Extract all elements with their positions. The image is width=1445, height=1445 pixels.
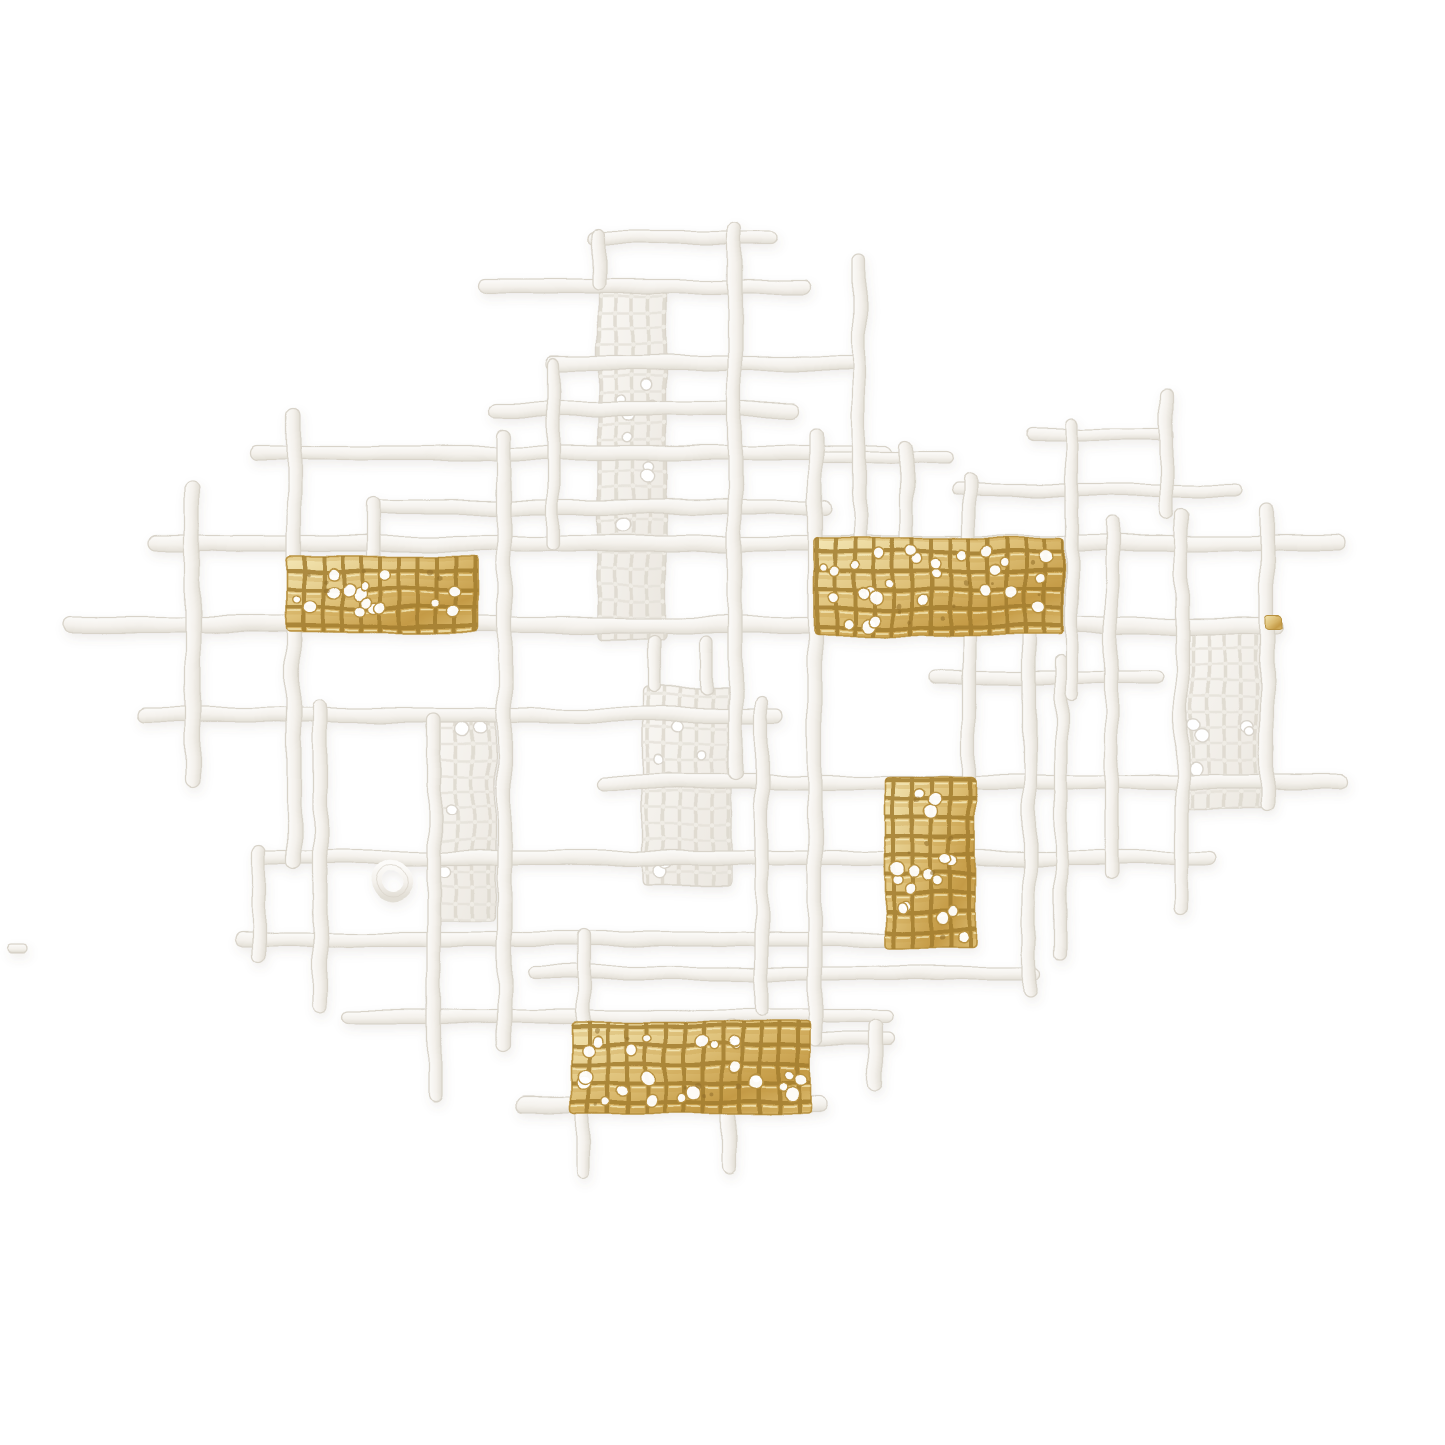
- gold-mesh-hole: [917, 594, 928, 605]
- gold-speck: [595, 1103, 598, 1106]
- plaster-bar-vertical: [700, 636, 712, 694]
- plaster-bar-vertical: [287, 408, 301, 870]
- gold-speck: [992, 581, 995, 584]
- plaster-bar-vertical: [1023, 630, 1036, 997]
- plaster-bar-horizontal: [63, 617, 1283, 633]
- mesh-hole: [698, 751, 707, 760]
- gold-mesh-hole: [937, 912, 949, 924]
- plaster-bar-vertical: [1066, 418, 1078, 700]
- gold-mesh-hole: [978, 583, 990, 595]
- gold-mesh-hole: [820, 563, 828, 571]
- plaster-bar-vertical: [547, 358, 559, 550]
- gold-mesh-hole: [303, 601, 317, 615]
- gold-mesh-hole: [982, 544, 993, 555]
- gold-mesh-hole: [957, 548, 968, 559]
- plaster-bar-horizontal: [950, 484, 1242, 496]
- gold-mesh-hole: [990, 563, 1001, 574]
- gold-mesh-hole: [293, 596, 301, 604]
- plaster-bar-vertical: [313, 700, 327, 1013]
- gold-mesh-hole: [379, 568, 391, 580]
- plaster-bar-horizontal: [138, 708, 784, 722]
- plaster-bar-horizontal: [1026, 428, 1174, 440]
- gold-mesh-hole: [957, 933, 968, 944]
- gold-speck: [896, 601, 901, 606]
- gold-speck: [938, 934, 944, 940]
- plaster-mesh-panel: [433, 713, 495, 921]
- gold-speck: [952, 605, 955, 608]
- gold-speck: [427, 568, 433, 574]
- gold-mesh-hole: [778, 1082, 786, 1090]
- gold-mesh-hole: [750, 1075, 764, 1089]
- gold-speck: [962, 579, 968, 585]
- gold-speck: [702, 1094, 706, 1098]
- plaster-bar-horizontal: [478, 279, 812, 293]
- gold-mesh-hole: [1000, 557, 1008, 565]
- gold-mesh-hole: [869, 614, 881, 626]
- plaster-bar-horizontal: [250, 446, 893, 460]
- gold-mesh-hole: [728, 1037, 739, 1048]
- mesh-hole: [1188, 762, 1202, 776]
- gold-mesh-hole: [326, 567, 337, 578]
- gold-speck: [949, 835, 954, 840]
- gold-mesh-hole: [931, 568, 941, 578]
- gold-mesh-hole: [896, 902, 907, 913]
- plaster-bar-horizontal: [813, 452, 953, 464]
- gold-mesh-hole: [794, 1074, 807, 1087]
- gold-mesh-hole: [640, 1071, 654, 1085]
- gold-mesh-hole: [869, 589, 882, 602]
- gold-mesh-panel: [287, 556, 478, 633]
- gold-mesh-hole: [602, 1098, 610, 1106]
- plaster-bar-vertical: [253, 845, 266, 963]
- gold-mesh-hole: [858, 586, 870, 598]
- mesh-panel-texture: [433, 713, 495, 921]
- gold-mesh-hole: [924, 805, 938, 819]
- wall-sculpture-photo: [0, 0, 1445, 1445]
- gold-fleck: [1266, 615, 1282, 628]
- gold-mesh-hole: [1036, 573, 1046, 583]
- plaster-bar-vertical: [1055, 655, 1067, 960]
- gold-mesh-hole: [677, 1094, 686, 1103]
- sculpture: [8, 221, 1347, 1178]
- plaster-bar-vertical: [648, 636, 660, 694]
- gold-mesh-hole: [694, 1035, 707, 1048]
- gold-mesh-hole: [643, 1035, 651, 1043]
- gold-mesh-hole: [1006, 586, 1020, 600]
- gold-mesh-hole: [1038, 549, 1052, 563]
- gold-mesh-hole: [1033, 602, 1046, 615]
- gold-speck: [360, 568, 365, 573]
- gold-mesh-panel: [885, 776, 975, 948]
- gold-speck: [709, 1091, 713, 1095]
- plaster-bar-horizontal: [588, 231, 778, 244]
- gold-mesh-hole: [582, 1043, 595, 1056]
- gold-mesh-hole: [874, 547, 885, 558]
- product-photo-stage: [0, 0, 1445, 1445]
- gold-speck: [909, 619, 912, 622]
- gold-mesh-hole: [341, 582, 354, 595]
- gold-mesh-panel: [814, 538, 1064, 635]
- plaster-bar-vertical: [428, 713, 441, 1103]
- plaster-bar-vertical: [1105, 517, 1118, 880]
- gold-mesh-hole: [448, 606, 460, 618]
- gold-speck: [914, 796, 920, 802]
- plaster-bar-vertical: [869, 1020, 883, 1090]
- mesh-hole: [641, 380, 652, 391]
- mesh-hole: [1195, 729, 1209, 743]
- gold-mesh-hole: [930, 558, 941, 569]
- gold-mesh-hole: [932, 877, 942, 887]
- plaster-bar-vertical: [728, 221, 742, 781]
- horizontal-bar-layer: [8, 231, 1347, 1112]
- plaster-bar-vertical: [1175, 508, 1188, 913]
- gold-speck: [1040, 594, 1043, 597]
- gold-mesh-hole: [431, 600, 440, 609]
- gold-speck: [737, 1083, 743, 1089]
- gold-mesh-hole: [928, 792, 941, 805]
- gold-mesh-hole: [449, 585, 461, 597]
- gold-speck: [323, 586, 329, 592]
- gold-speck: [437, 574, 443, 580]
- mesh-hole: [445, 805, 456, 816]
- plaster-bar-vertical: [808, 428, 822, 1045]
- gold-mesh-hole: [940, 853, 952, 865]
- mesh-hole: [1245, 728, 1254, 737]
- mesh-hole: [1188, 719, 1200, 731]
- gold-mesh-hole: [785, 1071, 794, 1080]
- mesh-hole: [654, 755, 664, 765]
- mesh-hole: [672, 722, 683, 733]
- gold-mesh-hole: [890, 862, 904, 876]
- gold-mesh-hole: [592, 1036, 603, 1047]
- gold-speck: [1030, 560, 1034, 564]
- gold-mesh-hole: [908, 866, 920, 878]
- plaster-bar-horizontal: [527, 967, 1040, 980]
- plaster-bar-vertical: [185, 480, 200, 788]
- gold-mesh-hole: [729, 1062, 741, 1074]
- plaster-bar-horizontal: [8, 945, 28, 953]
- gold-mesh-hole: [885, 578, 894, 587]
- gold-mesh-hole: [828, 593, 839, 604]
- gold-mesh-hole: [843, 618, 854, 629]
- gold-mesh-hole: [851, 560, 860, 569]
- gold-mesh-hole: [644, 1094, 656, 1106]
- gold-speck: [940, 615, 944, 619]
- plaster-bar-horizontal: [367, 500, 831, 514]
- gold-mesh-hole: [948, 907, 958, 917]
- gold-mesh-hole: [375, 602, 387, 614]
- gold-mesh-hole: [617, 1085, 628, 1096]
- mesh-hole: [474, 721, 486, 733]
- gold-speck: [931, 873, 936, 878]
- gold-mesh-hole: [578, 1069, 593, 1084]
- plaster-bar-vertical: [497, 428, 511, 1053]
- gold-speck: [925, 840, 930, 845]
- plaster-bar-vertical: [1160, 390, 1173, 520]
- mesh-hole: [456, 722, 470, 736]
- gold-speck: [696, 1082, 702, 1088]
- gold-speck: [322, 577, 326, 581]
- gold-mesh-hole: [359, 581, 368, 590]
- plaster-bar-horizontal: [545, 356, 862, 370]
- gold-mesh-hole: [354, 605, 365, 616]
- gold-speck: [898, 607, 902, 611]
- plaster-bar-horizontal: [490, 402, 797, 416]
- gold-speck: [594, 1028, 599, 1033]
- plaster-bar-vertical: [1260, 505, 1274, 810]
- gold-speck: [907, 852, 910, 855]
- plaster-bar-horizontal: [148, 536, 1347, 551]
- mesh-hole: [623, 433, 632, 442]
- gold-speck: [626, 1037, 630, 1041]
- mesh-hole: [640, 470, 654, 484]
- plaster-bar-vertical: [592, 228, 605, 290]
- gold-mesh-hole: [709, 1043, 718, 1052]
- gold-mesh-hole: [905, 883, 916, 894]
- gold-speck: [306, 571, 309, 574]
- plaster-bar-vertical: [755, 697, 768, 1017]
- mesh-hole: [615, 518, 629, 532]
- gold-speck: [683, 1087, 686, 1090]
- gold-mesh-hole: [626, 1045, 638, 1057]
- gold-mesh-hole: [905, 545, 916, 556]
- gold-mesh-hole: [830, 565, 840, 575]
- gold-mesh-panel: [572, 1022, 810, 1113]
